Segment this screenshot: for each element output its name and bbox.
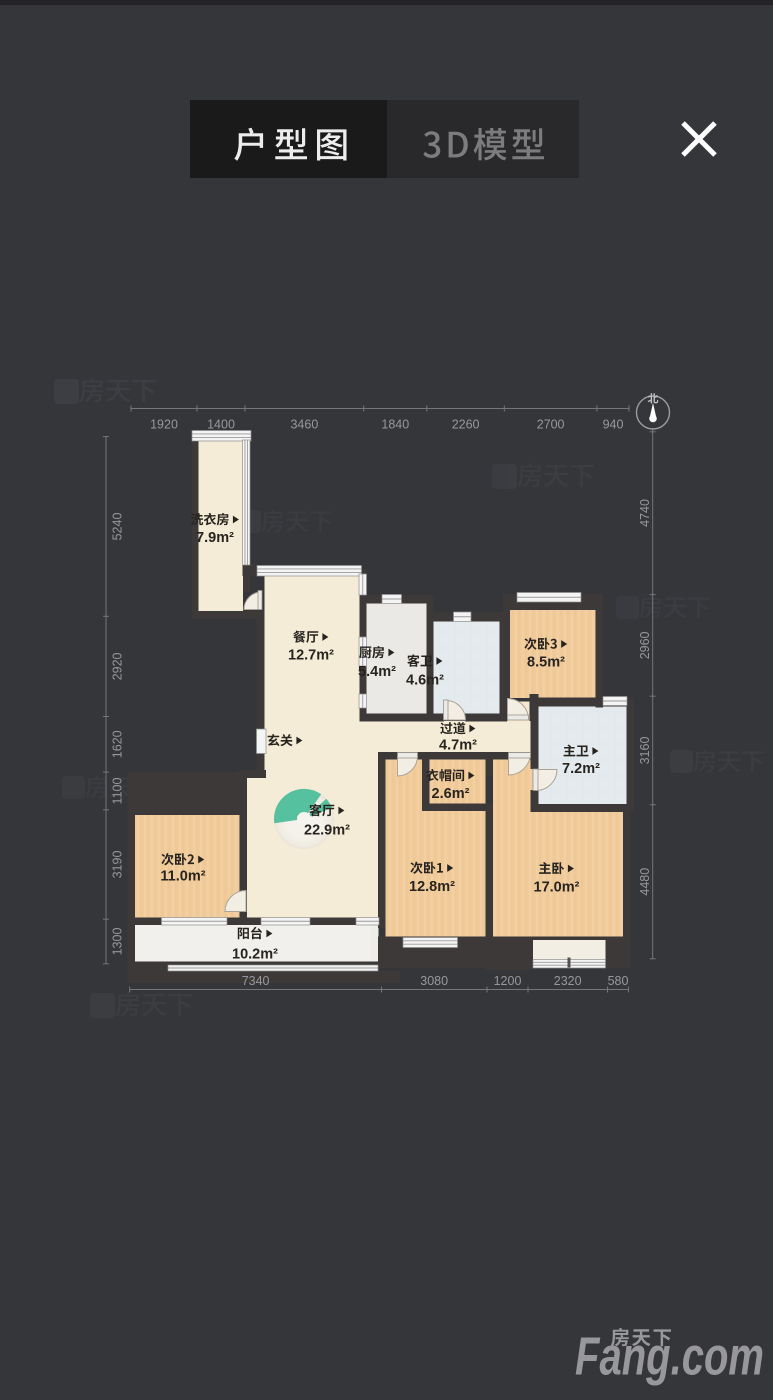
svg-text:3190: 3190 [111,851,125,879]
svg-text:3160: 3160 [638,737,652,765]
svg-text:940: 940 [603,418,624,432]
svg-text:2960: 2960 [638,631,652,659]
svg-text:1920: 1920 [150,418,178,432]
svg-text:1620: 1620 [111,730,125,758]
svg-text:1300: 1300 [111,928,125,956]
svg-text:5240: 5240 [111,513,125,541]
svg-text:7.2m²: 7.2m² [562,761,600,777]
svg-text:1100: 1100 [111,778,125,805]
svg-text:2.6m²: 2.6m² [432,786,470,802]
svg-text:12.8m²: 12.8m² [409,879,455,895]
svg-text:17.0m²: 17.0m² [534,880,580,896]
svg-text:580: 580 [608,974,629,988]
svg-text:4.7m²: 4.7m² [439,738,477,754]
svg-text:7.9m²: 7.9m² [196,530,234,546]
svg-text:10.2m²: 10.2m² [232,947,278,963]
svg-text:2260: 2260 [452,418,480,432]
svg-text:3460: 3460 [290,418,318,432]
svg-text:4.6m²: 4.6m² [406,673,444,689]
svg-text:1840: 1840 [381,418,409,432]
svg-text:4480: 4480 [638,868,652,896]
svg-text:2700: 2700 [537,418,565,432]
svg-text:Fang.com: Fang.com [575,1327,764,1387]
svg-text:11.0m²: 11.0m² [160,869,205,885]
svg-text:2920: 2920 [111,652,125,680]
svg-text:5.4m²: 5.4m² [358,664,396,680]
svg-text:7340: 7340 [242,974,270,988]
svg-text:1200: 1200 [494,974,522,988]
svg-text:22.9m²: 22.9m² [304,823,350,839]
svg-text:8.5m²: 8.5m² [527,655,565,671]
svg-text:3080: 3080 [420,974,448,988]
svg-text:1400: 1400 [207,418,235,432]
svg-text:12.7m²: 12.7m² [288,648,334,664]
svg-text:2320: 2320 [554,974,582,988]
svg-text:4740: 4740 [638,499,652,527]
